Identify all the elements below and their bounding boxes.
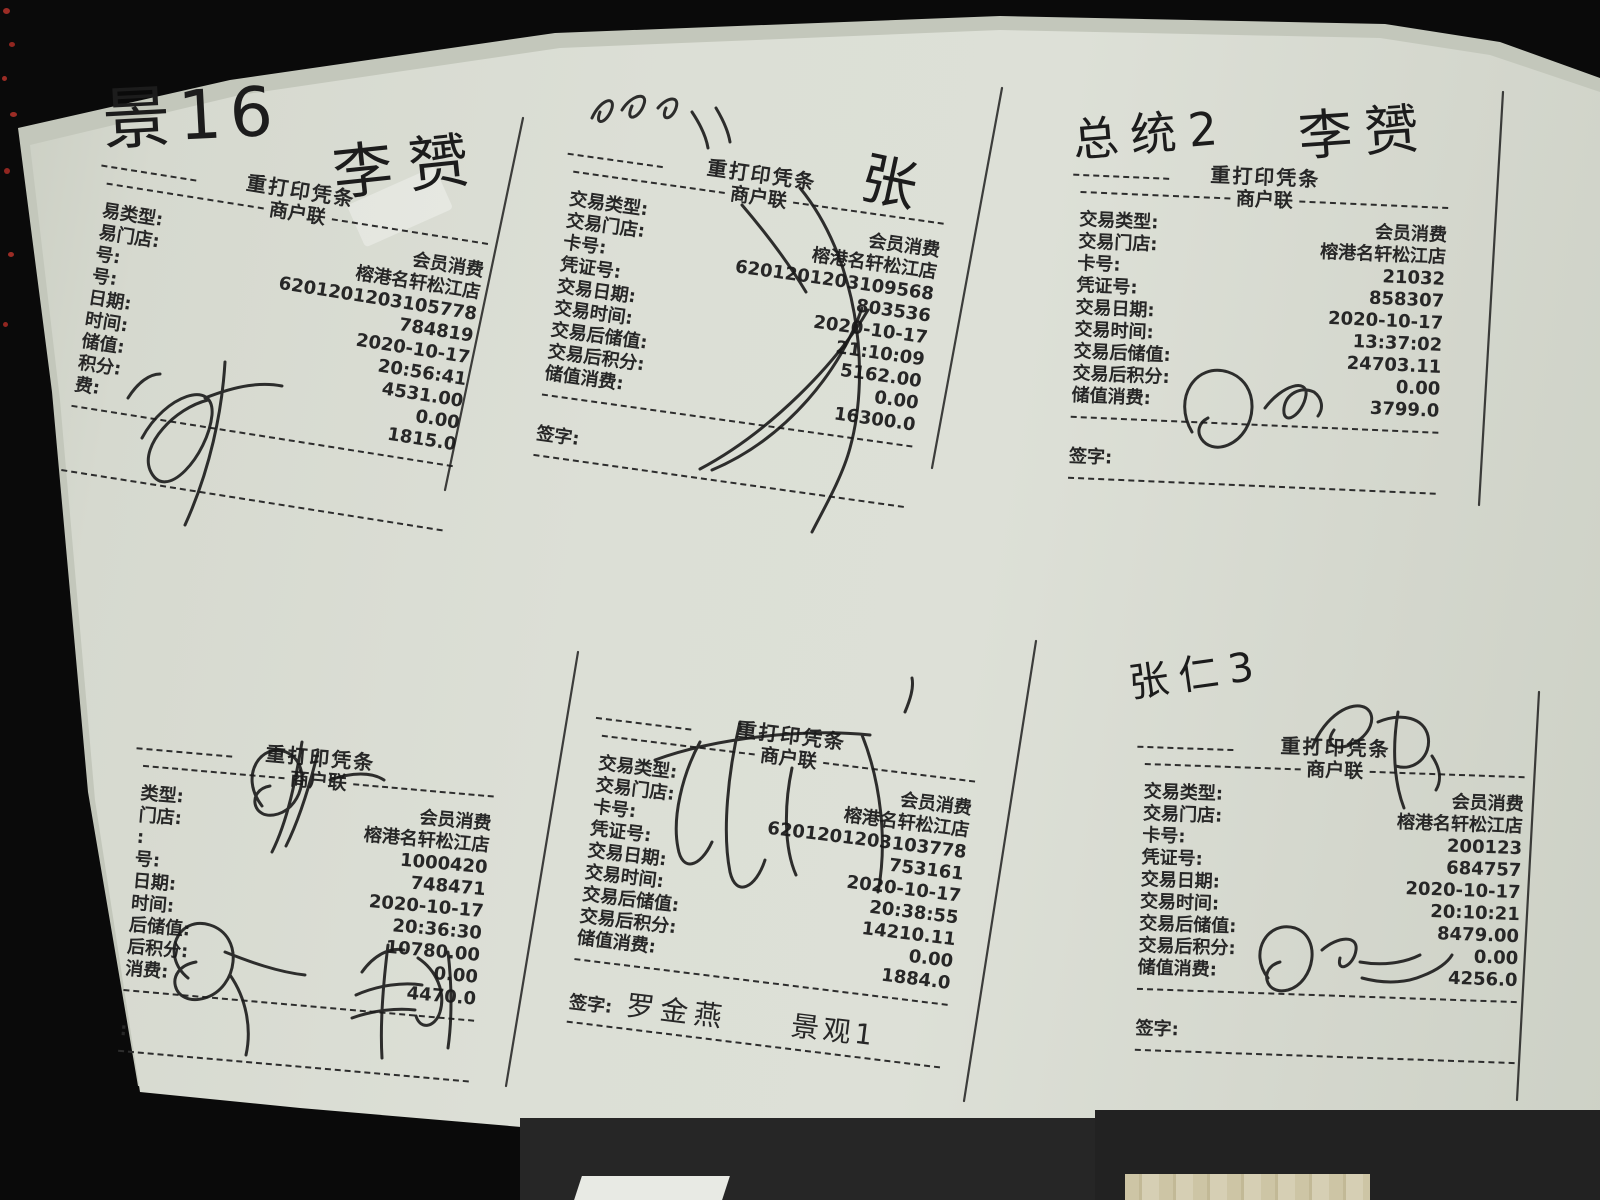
field-value: 0.00: [1473, 947, 1518, 971]
field-value: 会员消费: [1451, 792, 1524, 816]
sign-label: 签字:: [1135, 1018, 1179, 1040]
receipt-subtitle: 商户联: [1235, 188, 1293, 212]
receipt-rows: 交易类型:会员消费交易门店:榕港名轩松江店卡号:6201201203103778…: [576, 753, 973, 995]
handwritten-signature: 李赟: [328, 110, 488, 212]
field-value: 24703.11: [1346, 353, 1441, 379]
receipt-top-left: 重打印凭条 商户联 易类型:会员消费易门店:榕港名轩松江店号:620120120…: [61, 150, 493, 531]
photo-of-receipts: 重打印凭条 商户联 易类型:会员消费易门店:榕港名轩松江店号:620120120…: [0, 0, 1600, 1200]
field-label: 卡号:: [1077, 253, 1121, 277]
dashed-rule: [1299, 201, 1448, 210]
signature-row: 签字:: [1135, 1018, 1516, 1055]
handwritten-signer-name: 罗金燕: [624, 989, 729, 1034]
field-label: 交易类型:: [1143, 781, 1223, 806]
receipt-bottom-middle: 重打印凭条 商户联 交易类型:会员消费交易门店:榕港名轩松江店卡号:620120…: [567, 702, 980, 1068]
field-label: 交易日期:: [1140, 869, 1220, 894]
field-value: 4470.0: [406, 983, 477, 1011]
receipt-subtitle: 商户联: [1306, 759, 1364, 783]
receipt-bottom-left: 重打印凭条 商户联 类型:会员消费门店:榕港名轩松江店:1000420号:748…: [118, 732, 497, 1082]
handwritten-room-note: 景16: [100, 55, 283, 163]
receipt-subtitle: 商户联: [289, 768, 348, 795]
field-value: 200123: [1447, 836, 1523, 861]
receipt-rows: 类型:会员消费门店:榕港名轩松江店:1000420号:748471日期:2020…: [124, 783, 492, 1011]
receipt-rows: 交易类型:会员消费交易门店:榕港名轩松江店卡号:21032凭证号:858307交…: [1071, 209, 1447, 423]
sign-label: 签字:: [535, 423, 581, 450]
red-speck: [3, 8, 10, 14]
field-value: 21032: [1382, 266, 1446, 291]
field-value: 榕港名轩松江店: [1397, 812, 1524, 838]
handwritten-room-note: 景观1: [789, 1009, 878, 1052]
wood-strip: [1125, 1174, 1370, 1200]
receipt-rows: 交易类型:会员消费交易门店:榕港名轩松江店卡号:200123凭证号:684757…: [1137, 781, 1524, 992]
field-value: 684757: [1446, 858, 1522, 883]
dashed-rule: [1145, 763, 1300, 770]
dashed-rule: [1080, 191, 1229, 200]
field-value: 会员消费: [1375, 222, 1448, 247]
field-value: 3799.0: [1369, 398, 1439, 423]
field-value: 858307: [1369, 288, 1445, 313]
receipt-bottom-right: 重打印凭条 商户联 交易类型:会员消费交易门店:榕港名轩松江店卡号:200123…: [1135, 730, 1526, 1064]
field-label: 凭证号:: [1141, 847, 1203, 871]
red-speck: [2, 76, 7, 81]
red-speck: [3, 322, 8, 327]
field-label: 费:: [73, 374, 101, 400]
red-speck: [8, 252, 14, 257]
field-label: 卡号:: [1142, 825, 1186, 848]
dashed-rule: [1369, 771, 1524, 778]
sign-label: :: [119, 1019, 128, 1041]
field-value: 2020-10-17: [1405, 878, 1521, 904]
field-value: 4256.0: [1448, 968, 1518, 992]
dashed-rule: [353, 783, 494, 797]
sign-label: 签字:: [1069, 446, 1113, 469]
field-value: 20:10:21: [1430, 901, 1520, 926]
sign-label: 签字:: [568, 992, 613, 1018]
field-label: 交易时间:: [1140, 891, 1220, 916]
field-label: 号:: [134, 849, 161, 873]
field-value: 0.00: [1395, 377, 1440, 401]
red-speck: [9, 42, 15, 47]
field-label: :: [136, 827, 145, 850]
field-label: 交易门店:: [1143, 803, 1223, 828]
field-label: 凭证号:: [1076, 275, 1138, 300]
red-speck: [10, 112, 17, 117]
field-value: 8479.00: [1437, 923, 1520, 948]
field-label: 消费:: [124, 958, 169, 984]
field-label: 储值消费:: [1071, 385, 1151, 410]
field-label: 储值消费:: [1137, 957, 1217, 982]
handwritten-room-note: 总统2: [1069, 91, 1231, 170]
red-speck: [4, 168, 10, 174]
receipt-top-right: 重打印凭条 商户联 交易类型:会员消费交易门店:榕港名轩松江店卡号:21032凭…: [1068, 158, 1450, 495]
handwritten-signature: 李赟: [1295, 83, 1432, 171]
paper-corner-under: [574, 1176, 730, 1200]
dashed-rule: [143, 765, 284, 779]
